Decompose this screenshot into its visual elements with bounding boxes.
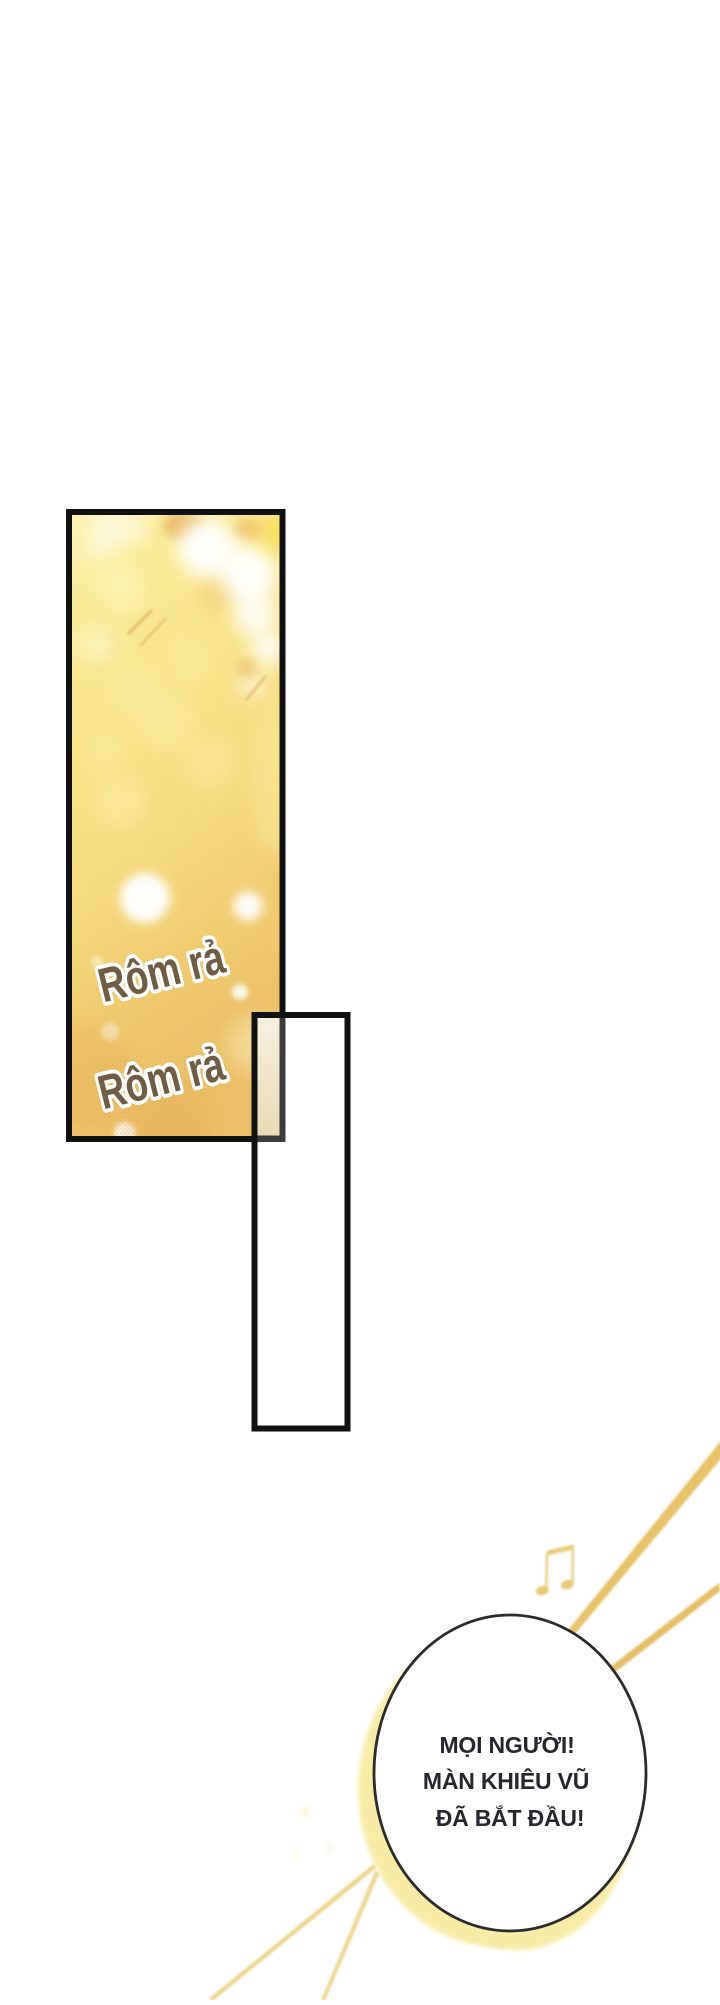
svg-text:MỌI NGƯỜI!: MỌI NGƯỜI! [439, 1731, 574, 1758]
svg-text:MÀN KHIÊU VŨ: MÀN KHIÊU VŨ [423, 1767, 589, 1794]
svg-text:ĐÃ BẮT ĐẦU!: ĐÃ BẮT ĐẦU! [436, 1804, 585, 1831]
